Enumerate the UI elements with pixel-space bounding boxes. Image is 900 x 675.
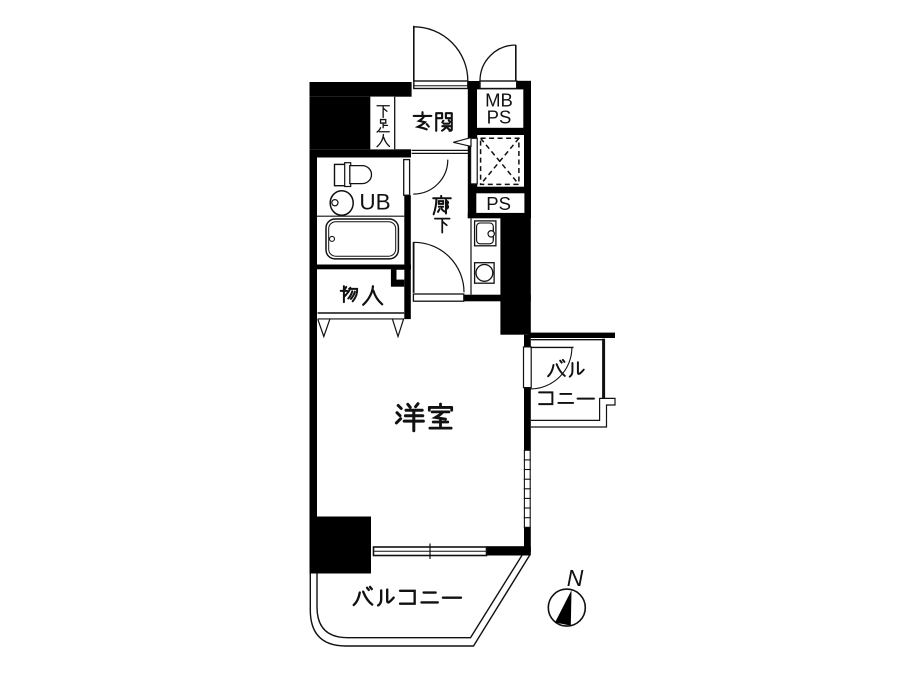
svg-text:PS: PS	[487, 107, 512, 128]
svg-text:UB: UB	[359, 190, 390, 215]
svg-text:PS: PS	[486, 193, 511, 214]
svg-text:N: N	[567, 565, 584, 591]
